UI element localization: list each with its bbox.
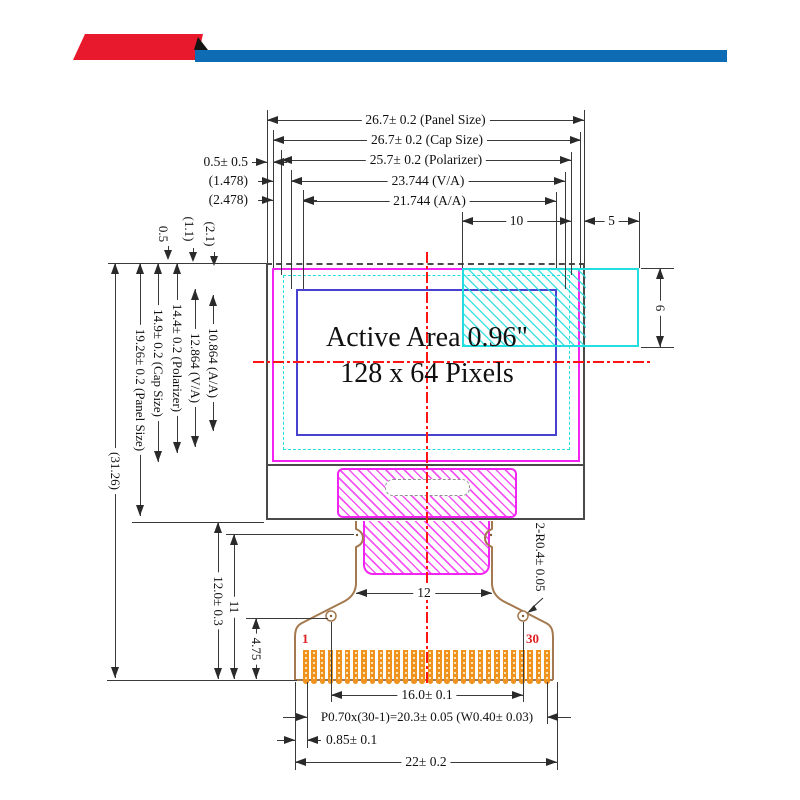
extension-line <box>571 152 572 275</box>
connector-pin <box>436 650 442 684</box>
banner-blue-bar <box>195 50 727 62</box>
ic-window <box>385 479 470 496</box>
connector-pin <box>386 650 392 684</box>
leader-arrow <box>189 252 197 262</box>
extension-line <box>580 132 581 268</box>
connector-pin <box>428 650 434 684</box>
dim-corner-radius: 2-R0.4± 0.05 <box>532 521 548 594</box>
extension-line <box>639 212 640 268</box>
extension-line <box>557 682 558 770</box>
reference-line <box>226 534 354 535</box>
connector-pin <box>411 650 417 684</box>
connector-pin <box>320 650 326 684</box>
dim-pin-pitch: P0.70x(30-1)=20.3± 0.05 (W0.40± 0.03) <box>317 710 537 724</box>
extension-line <box>295 682 296 770</box>
connector-pin <box>403 650 409 684</box>
connector-pin <box>353 650 359 684</box>
connector-pin <box>345 650 351 684</box>
reference-line <box>108 263 266 264</box>
leader-arrow <box>164 250 172 260</box>
leader-arrow <box>210 256 218 266</box>
connector-pin <box>311 650 317 684</box>
pin-30-label: 30 <box>526 631 539 647</box>
connector-pin <box>394 650 400 684</box>
connector-pin <box>370 650 376 684</box>
connector-pin <box>494 650 500 684</box>
drawing-canvas: 1 30 Active Area 0.96" 128 x 64 Pixels 2… <box>0 0 800 800</box>
connector-pin <box>444 650 450 684</box>
extension-line <box>273 130 274 268</box>
connector-pin <box>544 650 550 684</box>
reference-line <box>132 522 264 523</box>
connector-pin <box>361 650 367 684</box>
reference-line <box>107 680 297 681</box>
connector-pin <box>486 650 492 684</box>
dim-pin-margin: 0.85± 0.1 <box>322 733 381 747</box>
connector-pin <box>378 650 384 684</box>
reference-line <box>641 347 674 348</box>
connector-pin <box>503 650 509 684</box>
extension-line <box>281 150 282 275</box>
banner-red-shape <box>73 34 203 60</box>
dim-top-offset-05: 0.5 <box>155 224 171 244</box>
connector-pin <box>419 650 425 684</box>
pin-1-label: 1 <box>302 631 309 647</box>
extension-line <box>584 110 585 263</box>
connector-pin <box>511 650 517 684</box>
active-area-label: Active Area 0.96" <box>267 322 587 354</box>
connector-pin <box>453 650 459 684</box>
extension-line <box>556 192 557 268</box>
extension-line <box>565 172 566 289</box>
dim-offset-1478: (1.478) <box>170 174 252 188</box>
extension-line <box>267 110 268 263</box>
dim-top-offset-11: (1.1) <box>181 215 197 244</box>
dim-offset-05: 0.5± 0.5 <box>170 155 252 169</box>
connector-pin <box>469 650 475 684</box>
dim-offset-2478: (2.478) <box>170 193 252 207</box>
extension-line <box>523 622 524 702</box>
connector-pin <box>303 650 309 684</box>
connector-pin <box>527 650 533 684</box>
dim-top-offset-21: (2.1) <box>202 220 218 249</box>
connector-pin <box>536 650 542 684</box>
connector-pin <box>478 650 484 684</box>
pixel-count-label: 128 x 64 Pixels <box>267 358 587 390</box>
extension-line <box>331 622 332 702</box>
connector-pin <box>461 650 467 684</box>
vertical-centerline <box>426 252 428 685</box>
connector-pin <box>336 650 342 684</box>
extension-line <box>291 170 292 289</box>
